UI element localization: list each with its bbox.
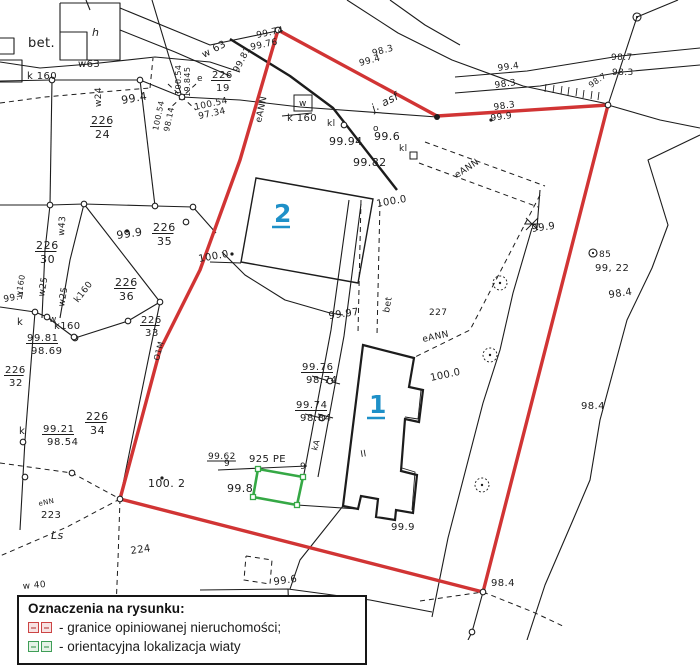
map-label: w24 xyxy=(94,87,104,107)
parcel-number-top: 226 xyxy=(141,315,162,326)
legend-title: Oznaczenia na rysunku: xyxy=(28,601,356,616)
legend-item-label: - orientacyjna lokalizacja wiaty xyxy=(59,639,241,654)
map-canvas: 21bet.hw63w 63k 160e99.4w24100.5419.8451… xyxy=(0,0,700,640)
survey-point xyxy=(183,219,189,225)
map-label: 99.94 xyxy=(329,135,363,148)
parcel-number-bottom: 32 xyxy=(9,378,23,389)
survey-point xyxy=(480,589,486,595)
tree-center xyxy=(489,354,491,356)
parcel-line xyxy=(390,0,460,45)
scarp-tick xyxy=(591,91,592,99)
map-label: eANN xyxy=(453,158,481,181)
map-label: 99.6 xyxy=(273,574,298,588)
map-label: 19.845 xyxy=(183,67,192,97)
dashed-line xyxy=(425,142,545,186)
map-label: h xyxy=(92,26,99,39)
parcel-number-top: 99.81 xyxy=(27,333,59,344)
parcel-number-top: 99.76 xyxy=(302,362,334,373)
map-label: 925 PE xyxy=(249,454,286,465)
map-label: 85 xyxy=(599,250,611,260)
survey-point xyxy=(341,122,347,128)
parcel-line xyxy=(60,32,87,60)
building-1-label: 1 xyxy=(369,390,386,419)
shed-location-outline xyxy=(253,469,303,505)
dashed-line xyxy=(377,202,380,335)
parcel-number-top: 99.74 xyxy=(296,400,328,411)
parcel-number-bottom: 98.54 xyxy=(47,437,79,448)
map-label: 223 xyxy=(41,510,61,521)
benchmark-center xyxy=(592,252,594,254)
parcel-line xyxy=(608,105,700,128)
map-label: 98.7 xyxy=(611,53,633,63)
parcel-number-top: 226 xyxy=(91,114,114,127)
map-label: 99.9 xyxy=(490,111,513,124)
map-label: w xyxy=(299,99,307,109)
property-boundary xyxy=(120,30,608,592)
survey-point xyxy=(117,496,123,502)
map-label: bet. xyxy=(28,36,55,51)
survey-point xyxy=(20,439,26,445)
map-label: k160 xyxy=(72,280,95,305)
map-label: eANN xyxy=(422,330,450,345)
map-label: kA xyxy=(310,439,322,452)
map-label: k 160 xyxy=(287,113,317,124)
parcel-line xyxy=(405,387,421,419)
map-label: 99.9 xyxy=(116,225,144,242)
survey-point xyxy=(190,204,196,210)
map-label: k xyxy=(19,426,25,437)
map-label: 227 xyxy=(429,308,447,318)
survey-point xyxy=(157,299,163,305)
parcel-number-bottom: 36 xyxy=(119,290,134,303)
parcel-number-top: 99.21 xyxy=(43,424,75,435)
scarp-tick xyxy=(583,90,584,98)
parcel-line xyxy=(432,228,532,617)
building-1-outline xyxy=(343,345,423,520)
parcel-number-bottom: 24 xyxy=(95,128,110,141)
map-label: w25 xyxy=(37,276,50,297)
parcel-number-bottom: 33 xyxy=(145,328,159,339)
dashed-line xyxy=(483,592,565,627)
map-label: 224 xyxy=(130,543,152,557)
survey-point xyxy=(32,309,38,315)
parcel-number-top: 226 xyxy=(212,70,233,81)
parcel-line xyxy=(637,0,678,17)
legend-item-label: - granice opiniowanej nieruchomości; xyxy=(59,620,281,635)
map-label: 99.97 xyxy=(328,307,360,322)
map-label: k160 xyxy=(54,321,80,332)
survey-point xyxy=(605,102,611,108)
parcel-number-bottom: 30 xyxy=(40,253,55,266)
survey-point xyxy=(71,334,77,340)
dashed-line xyxy=(244,556,272,584)
map-label: w43 xyxy=(57,216,68,237)
parcel-number-top: 226 xyxy=(36,239,59,252)
map-label: 99.82 xyxy=(353,156,387,169)
map-label: 100. 2 xyxy=(148,477,185,490)
map-label: 99.4 xyxy=(358,54,381,69)
page: { "colors": { "ink": "#1c1c1c", "boundar… xyxy=(0,0,700,640)
map-label: 99.81 xyxy=(232,45,254,74)
map-label: e xyxy=(197,74,203,84)
parcel-line xyxy=(455,65,700,93)
map-label: bet xyxy=(382,296,395,314)
map-label: 99.62 xyxy=(208,452,236,462)
map-label: 99.7 xyxy=(3,291,26,305)
shed-corner-mark xyxy=(295,503,300,508)
parcel-number-bottom: 35 xyxy=(157,235,172,248)
legend-item-boundary: - granice opiniowanej nieruchomości; xyxy=(28,620,356,635)
map-label: 100.54 xyxy=(174,65,183,95)
survey-point xyxy=(137,77,143,83)
parcel-line xyxy=(290,506,343,589)
benchmark-center xyxy=(636,16,638,18)
parcel-number-top: 226 xyxy=(153,221,176,234)
map-label: 99.6 xyxy=(374,130,400,143)
map-label: kl xyxy=(399,144,408,154)
survey-point xyxy=(69,470,75,476)
legend-box: Oznaczenia na rysunku: - granice opiniow… xyxy=(17,595,367,665)
parcel-line xyxy=(318,204,361,477)
dashed-line xyxy=(116,499,120,608)
parcel-number-bottom: 98.69 xyxy=(31,346,63,357)
dashed-line xyxy=(0,463,120,499)
dashed-line xyxy=(419,163,538,207)
green-shed-location-icon xyxy=(28,641,52,652)
map-label: k xyxy=(17,317,23,328)
tree-center xyxy=(499,282,501,284)
scarp-tick xyxy=(598,92,599,100)
parcel-line xyxy=(455,48,700,77)
map-label: 98.3 xyxy=(494,78,517,91)
survey-point xyxy=(469,629,475,635)
parcel-number-top: 226 xyxy=(86,410,109,423)
map-label: 99.4 xyxy=(120,90,148,107)
parcel-line xyxy=(527,135,700,640)
parcel-number-bottom: 19 xyxy=(216,83,230,94)
map-label: 99.8 xyxy=(227,482,253,495)
parcel-line xyxy=(0,38,14,54)
map-label: Ls xyxy=(51,529,64,542)
shed-corner-mark xyxy=(301,475,306,480)
parcel-line xyxy=(86,0,90,10)
survey-point xyxy=(152,203,158,209)
map-label: kl xyxy=(327,119,336,129)
scarp-tick xyxy=(576,88,577,96)
survey-point xyxy=(47,202,53,208)
map-label: w 40 xyxy=(22,580,46,592)
shed-corner-mark xyxy=(251,495,256,500)
survey-dot xyxy=(434,114,440,120)
map-label: 100.0 xyxy=(429,367,461,384)
map-label: 99.76 xyxy=(250,37,279,53)
map-label: 98.7 xyxy=(587,71,608,90)
parcel-number-bottom: 98.74 xyxy=(306,375,338,386)
scarp-tick xyxy=(561,86,562,94)
map-label: 98.3 xyxy=(612,68,634,78)
parcel-line xyxy=(222,252,343,315)
scarp-tick xyxy=(568,87,569,95)
map-label: w63 xyxy=(78,59,100,70)
dashed-line xyxy=(420,592,483,601)
legend-item-shed: - orientacyjna lokalizacja wiaty xyxy=(28,639,356,654)
parcel-number-top: 226 xyxy=(5,365,26,376)
parcel-number-bottom: 34 xyxy=(90,424,105,437)
survey-point xyxy=(22,474,28,480)
map-label: 98.4 xyxy=(608,287,633,301)
tree-center xyxy=(481,484,483,486)
map-label: 99.9 xyxy=(391,522,415,533)
parcel-line xyxy=(20,312,35,530)
dashed-line xyxy=(150,58,153,88)
map-label: 98.4 xyxy=(581,401,605,412)
map-label: 99, 22 xyxy=(595,263,629,274)
scarp-tick xyxy=(553,85,554,93)
utility-symbol xyxy=(410,152,417,159)
dashed-line xyxy=(0,499,120,556)
map-label: w25 xyxy=(57,286,70,307)
map-label: k 160 xyxy=(27,71,57,82)
building-2-label: 2 xyxy=(274,199,291,228)
shed-corner-mark xyxy=(256,467,261,472)
survey-point xyxy=(81,201,87,207)
parcel-line xyxy=(50,80,52,205)
parcel-line xyxy=(0,302,160,338)
parcel-line xyxy=(0,204,193,207)
survey-dot xyxy=(230,252,233,255)
map-label: 99.9 xyxy=(531,221,556,235)
parcel-line xyxy=(193,207,216,233)
parcel-number-top: 226 xyxy=(115,276,138,289)
red-boundary-line-icon xyxy=(28,622,52,633)
map-label: 9 xyxy=(300,462,306,472)
map-label: 98.4 xyxy=(491,578,515,589)
map-label: 100.0 xyxy=(376,194,408,210)
map-label: eNN xyxy=(38,497,55,508)
map-label: O1M xyxy=(152,340,165,361)
parcel-number-bottom: 98.84 xyxy=(300,413,332,424)
survey-map: 21bet.hw63w 63k 160e99.4w24100.5419.8451… xyxy=(0,0,700,640)
map-label: II xyxy=(360,449,368,460)
survey-point xyxy=(125,318,131,324)
